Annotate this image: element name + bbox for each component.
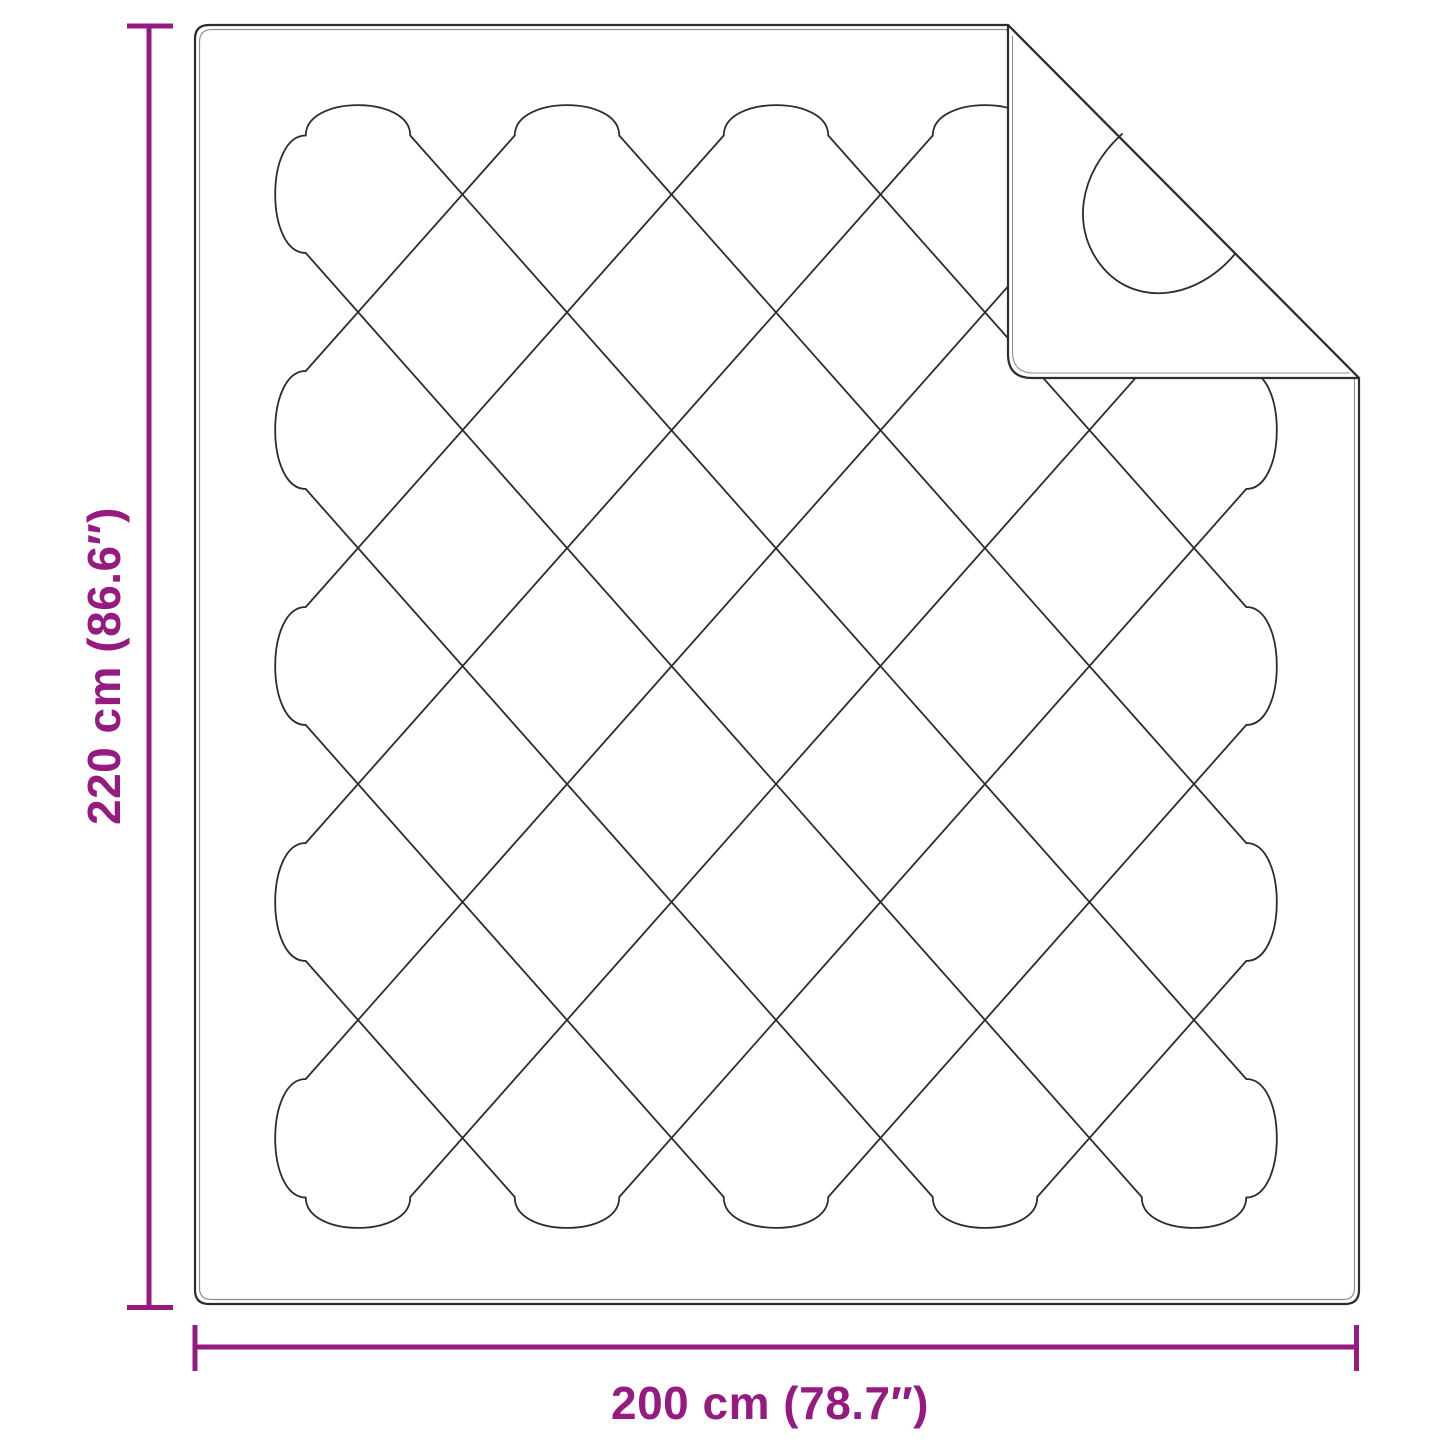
vertical-dimension-bottom-cap: [127, 1305, 173, 1310]
fold-flap: [1008, 25, 1359, 378]
blanket-diagram: [0, 0, 1445, 1445]
vertical-dimension-line: [147, 25, 152, 1310]
diagram-canvas: 220 cm (86.6″) 200 cm (78.7″): [0, 0, 1445, 1445]
quilted-blanket-outline: [195, 25, 1359, 1304]
vertical-dimension-label: 220 cm (86.6″): [77, 507, 131, 825]
vertical-dimension-top-cap: [127, 24, 173, 29]
horizontal-dimension: [193, 1325, 1360, 1371]
horizontal-dimension-line: [195, 1345, 1359, 1350]
fold-flap-shape: [1008, 25, 1359, 378]
horizontal-dimension-left-cap: [193, 1325, 198, 1371]
horizontal-dimension-right-cap: [1354, 1325, 1359, 1371]
vertical-dimension: [127, 24, 173, 1311]
horizontal-dimension-label: 200 cm (78.7″): [611, 1376, 929, 1430]
